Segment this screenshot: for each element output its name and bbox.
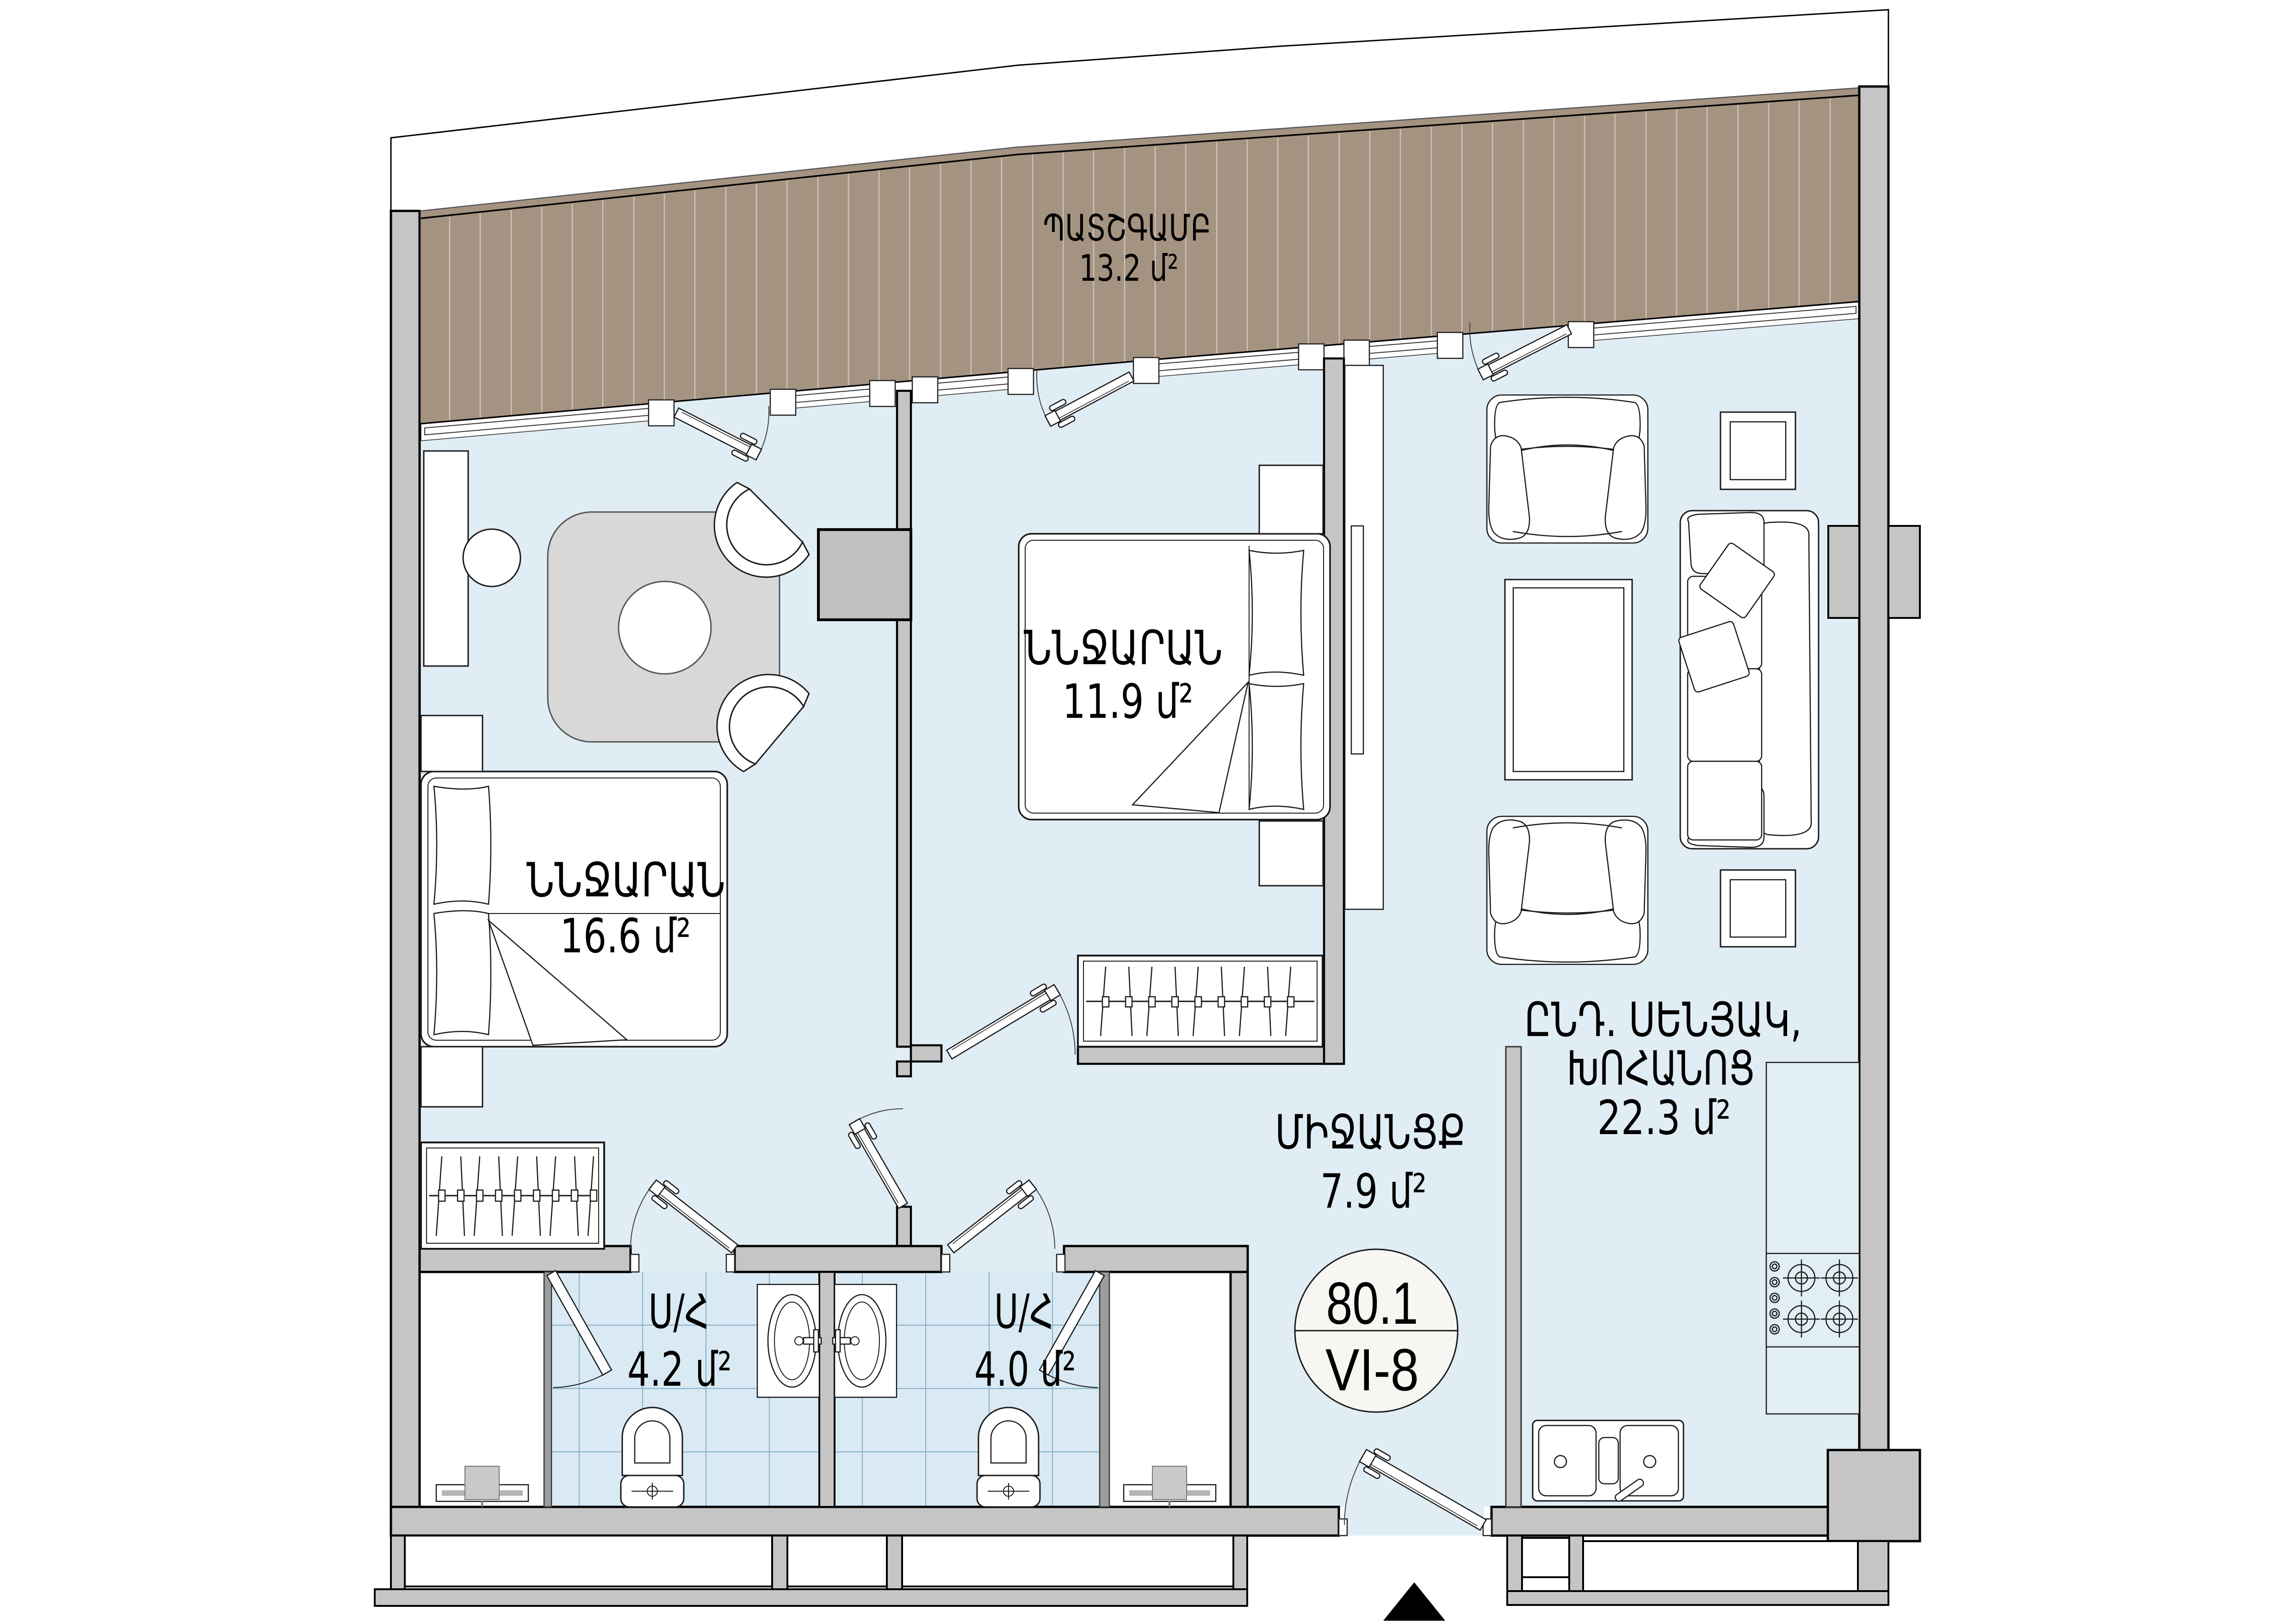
svg-text:VI-8: VI-8 — [1325, 1337, 1419, 1403]
svg-text:80.1: 80.1 — [1326, 1270, 1418, 1337]
